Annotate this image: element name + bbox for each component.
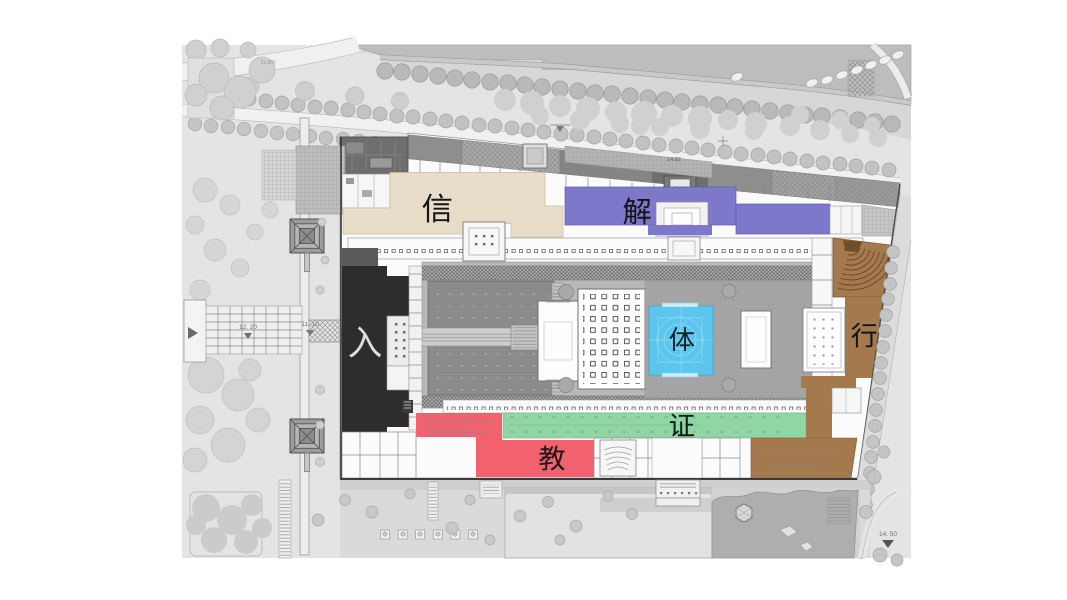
svg-text:14.82: 14.82 [667, 157, 681, 163]
svg-text:12. 20: 12. 20 [239, 324, 257, 331]
svg-text:14. 50: 14. 50 [879, 531, 897, 538]
svg-text:11.900: 11.900 [261, 60, 276, 66]
